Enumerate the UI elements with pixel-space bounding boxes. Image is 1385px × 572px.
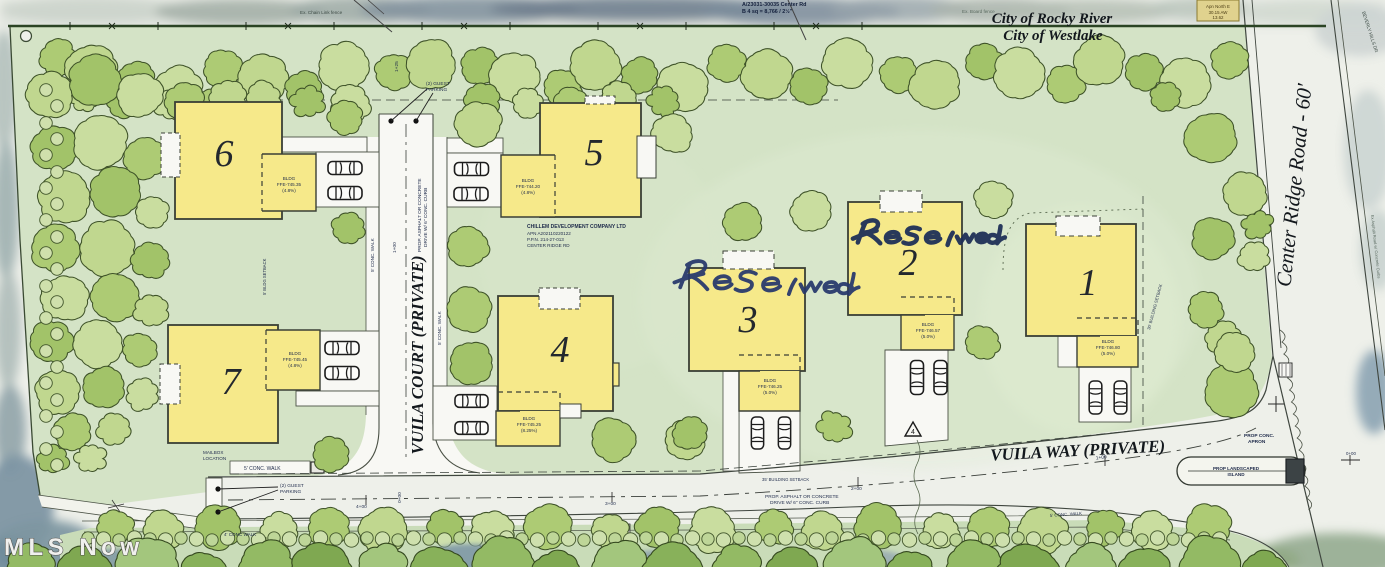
svg-text:(4.8%): (4.8%) — [282, 188, 296, 193]
svg-text:VUILA COURT (PRIVATE): VUILA COURT (PRIVATE) — [408, 256, 427, 455]
svg-text:13.62: 13.62 — [1213, 15, 1225, 20]
svg-text:35' BUILDING SETBACK: 35' BUILDING SETBACK — [762, 477, 809, 482]
svg-text:FFE-745.25: FFE-745.25 — [517, 422, 542, 427]
svg-text:(2) GUEST: (2) GUEST — [280, 483, 304, 489]
svg-text:0+00: 0+00 — [397, 492, 403, 503]
svg-text:5: 5 — [585, 132, 604, 174]
svg-text:(5.0%): (5.0%) — [1101, 351, 1115, 356]
svg-text:1+25: 1+25 — [394, 61, 400, 72]
svg-text:BLDG: BLDG — [522, 178, 535, 183]
svg-text:5' CONC. WALK: 5' CONC. WALK — [437, 310, 442, 345]
svg-text:FFE-746.57: FFE-746.57 — [916, 328, 941, 333]
svg-text:3: 3 — [738, 299, 758, 341]
svg-text:BLDG: BLDG — [1102, 339, 1115, 344]
svg-text:FFE-745.45: FFE-745.45 — [283, 357, 308, 362]
svg-text:ISLAND: ISLAND — [1227, 472, 1245, 477]
svg-text:City of Rocky River: City of Rocky River — [992, 11, 1113, 27]
svg-text:PROP. ASPHALT OR CONCRETE: PROP. ASPHALT OR CONCRETE — [765, 494, 839, 500]
svg-text:Ex. Chain Link fence: Ex. Chain Link fence — [300, 10, 343, 15]
svg-text:PROP CONC.: PROP CONC. — [1244, 433, 1274, 439]
svg-text:B 4 sq = 8,766 / 2½": B 4 sq = 8,766 / 2½" — [742, 8, 793, 15]
svg-text:0+00: 0+00 — [1346, 451, 1356, 456]
svg-text:PROP LANDSCAPED: PROP LANDSCAPED — [1213, 466, 1260, 471]
svg-text:(5.0%): (5.0%) — [763, 390, 777, 395]
svg-text:FFE-745.35: FFE-745.35 — [277, 182, 302, 187]
svg-text:FFE-744.20: FFE-744.20 — [516, 184, 541, 189]
svg-text:FFE-746.80: FFE-746.80 — [1096, 345, 1121, 350]
svg-text:CHILLEM DEVELOPMENT COMPANY LT: CHILLEM DEVELOPMENT COMPANY LTD — [527, 224, 626, 230]
svg-text:4: 4 — [911, 429, 915, 436]
svg-text:PARKING: PARKING — [426, 87, 448, 93]
svg-text:(5.0%): (5.0%) — [921, 334, 935, 339]
svg-text:7: 7 — [222, 361, 243, 403]
svg-text:(4.8%): (4.8%) — [521, 190, 535, 195]
svg-text:MAILBOX: MAILBOX — [203, 450, 223, 455]
svg-text:2+00: 2+00 — [851, 486, 862, 492]
svg-text:APN A202110220122: APN A202110220122 — [527, 231, 571, 236]
svg-text:3+00: 3+00 — [605, 501, 616, 507]
svg-text:DRIVE W/ 6" CONC. CURB: DRIVE W/ 6" CONC. CURB — [770, 500, 829, 506]
svg-text:Apn North E: Apn North E — [1206, 4, 1230, 9]
svg-text:Ex. Board fence: Ex. Board fence — [962, 9, 995, 14]
svg-text:1+00: 1+00 — [392, 242, 398, 253]
svg-text:5' BLDG SETBACK: 5' BLDG SETBACK — [262, 258, 267, 295]
svg-text:(8.25%): (8.25%) — [521, 428, 538, 433]
svg-text:4' CONC WALK: 4' CONC WALK — [224, 532, 257, 537]
svg-text:CENTER RIDGE RD: CENTER RIDGE RD — [527, 243, 570, 248]
svg-text:LOCATION: LOCATION — [203, 456, 226, 461]
svg-text:(4.8%): (4.8%) — [288, 363, 302, 368]
svg-text:BLDG: BLDG — [289, 351, 302, 356]
svg-text:DRIVE W/ 6" CONC. CURB: DRIVE W/ 6" CONC. CURB — [423, 188, 429, 247]
svg-text:APRON: APRON — [1248, 439, 1266, 445]
svg-text:BLDG: BLDG — [922, 322, 935, 327]
svg-text:(2) GUEST: (2) GUEST — [426, 81, 450, 87]
svg-text:1: 1 — [1079, 262, 1098, 304]
svg-text:City of Westlake: City of Westlake — [1003, 28, 1103, 44]
svg-text:2: 2 — [899, 242, 918, 284]
svg-text:5' CONC. WALK: 5' CONC. WALK — [370, 237, 375, 272]
svg-text:BLDG: BLDG — [283, 176, 296, 181]
svg-text:PROP. ASPHALT OR CONCRETE: PROP. ASPHALT OR CONCRETE — [417, 178, 423, 252]
svg-text:PARKING: PARKING — [280, 489, 302, 495]
svg-text:A/23031-30035 Center Rd: A/23031-30035 Center Rd — [742, 2, 806, 8]
svg-text:BLDG: BLDG — [764, 378, 777, 383]
svg-text:4+00: 4+00 — [356, 504, 367, 510]
svg-text:MLS Now: MLS Now — [4, 534, 144, 561]
svg-text:P.P.N. 214-27-013: P.P.N. 214-27-013 — [527, 237, 564, 242]
svg-text:6: 6 — [215, 133, 234, 175]
svg-text:FFE-746.25: FFE-746.25 — [758, 384, 783, 389]
svg-text:4: 4 — [551, 329, 570, 371]
svg-text:5' CONC. WALK: 5' CONC. WALK — [244, 466, 281, 472]
svg-text:BLDG: BLDG — [523, 416, 536, 421]
